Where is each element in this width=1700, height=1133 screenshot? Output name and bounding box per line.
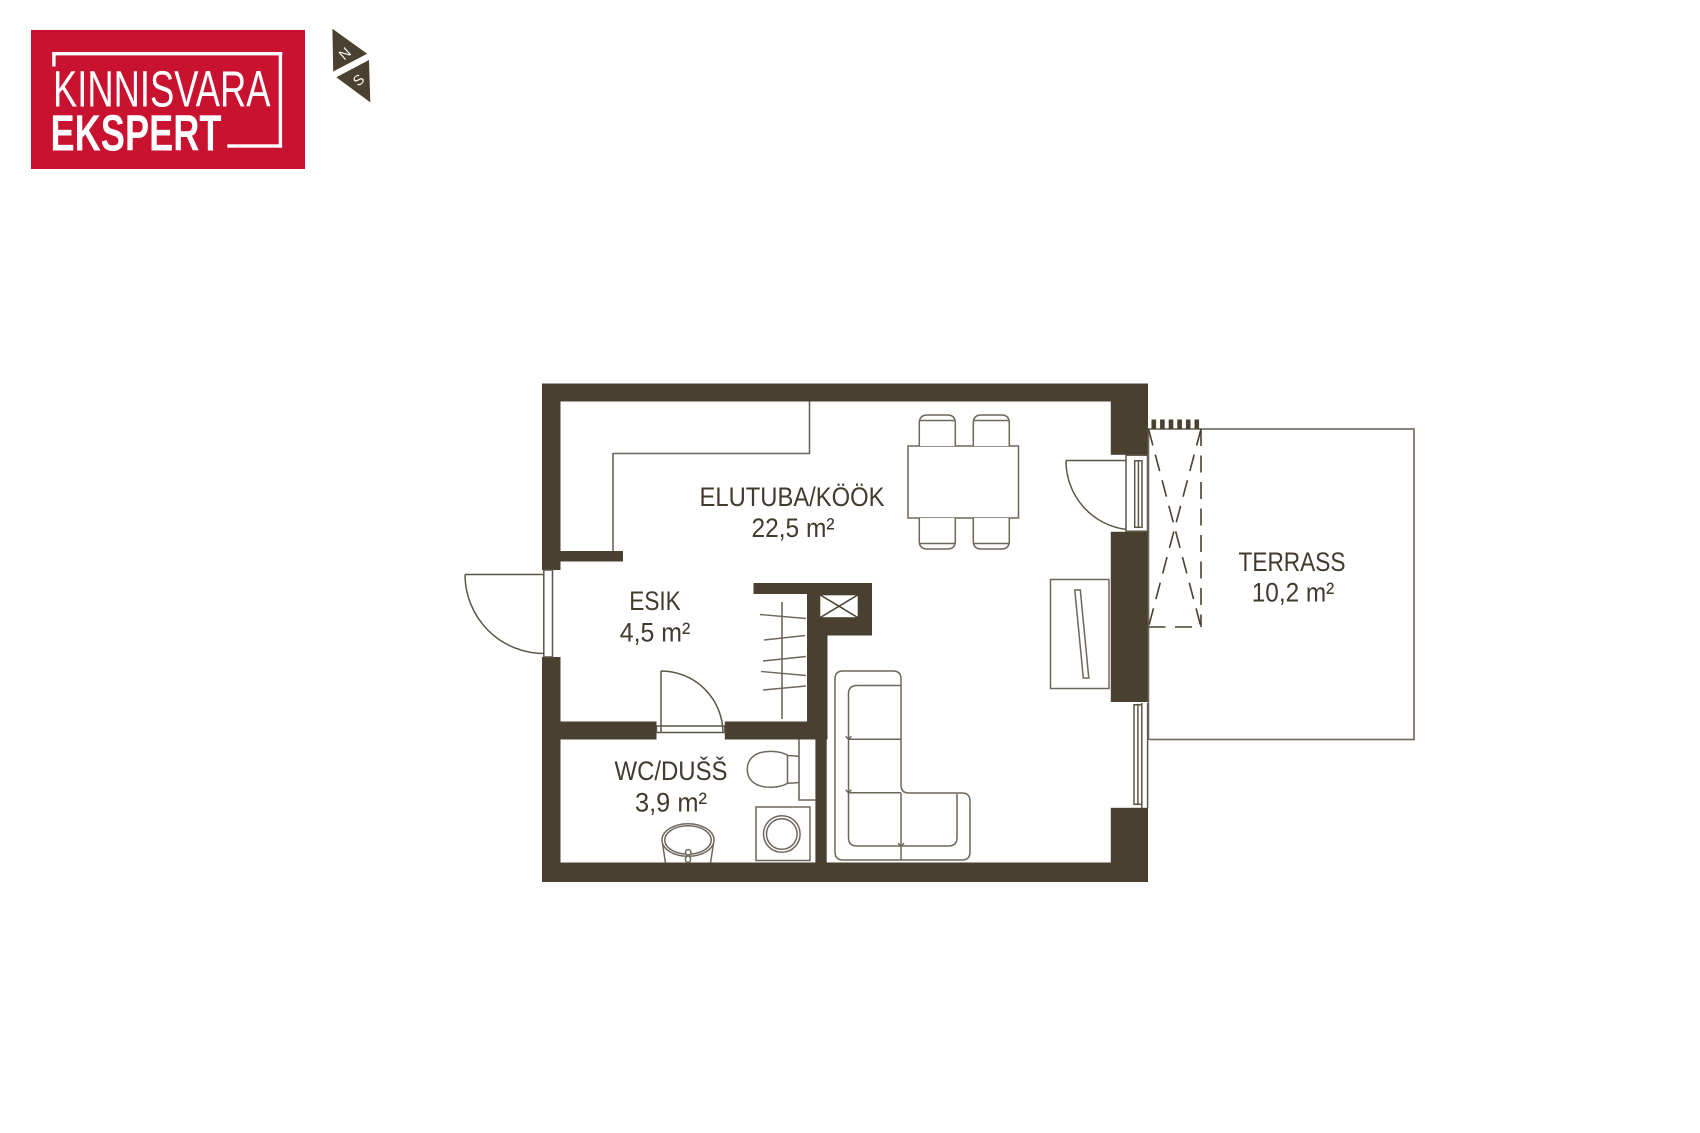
svg-text:10,2 m²: 10,2 m² [1252, 578, 1335, 608]
svg-text:ELUTUBA/KÖÖK: ELUTUBA/KÖÖK [700, 482, 885, 512]
svg-text:EKSPERT: EKSPERT [51, 105, 222, 162]
svg-text:TERRASS: TERRASS [1239, 547, 1346, 577]
svg-text:4,5 m²: 4,5 m² [620, 618, 691, 648]
svg-text:ESIK: ESIK [629, 586, 681, 616]
svg-text:WC/DUŠŠ: WC/DUŠŠ [615, 755, 728, 786]
svg-text:22,5 m²: 22,5 m² [752, 513, 835, 543]
svg-text:3,9 m²: 3,9 m² [635, 788, 707, 818]
